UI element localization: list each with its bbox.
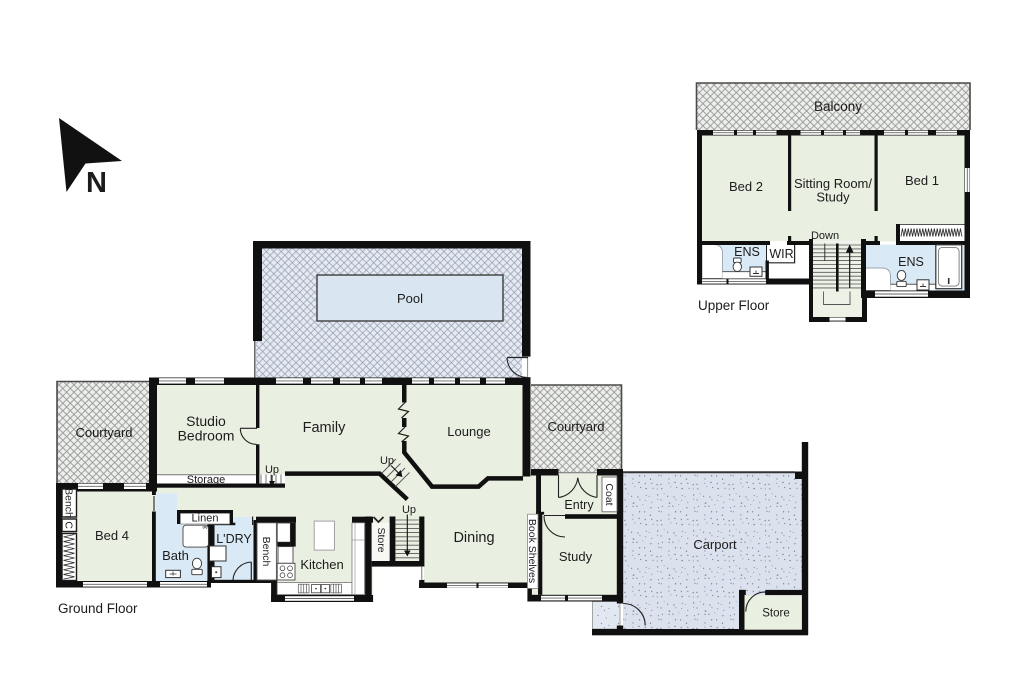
svg-text:Bath: Bath — [162, 548, 189, 563]
svg-text:Bed 4: Bed 4 — [95, 528, 129, 543]
svg-text:Pool: Pool — [397, 291, 423, 306]
svg-text:Study: Study — [816, 190, 850, 205]
svg-text:Store: Store — [375, 527, 387, 552]
svg-text:Courtyard: Courtyard — [75, 425, 132, 440]
svg-text:Carport: Carport — [693, 537, 737, 552]
svg-text:Bed 1: Bed 1 — [905, 173, 939, 188]
svg-text:Coat: Coat — [603, 483, 615, 505]
svg-text:Up: Up — [265, 464, 279, 476]
svg-text:WIR: WIR — [769, 247, 793, 261]
svg-text:Bench: Bench — [62, 488, 74, 518]
svg-text:N: N — [86, 167, 107, 199]
svg-text:Linen: Linen — [192, 513, 219, 525]
svg-text:ENS: ENS — [898, 255, 924, 269]
svg-text:Balcony: Balcony — [814, 99, 862, 114]
svg-text:C: C — [62, 521, 74, 529]
svg-text:Up: Up — [380, 455, 394, 467]
svg-text:Up: Up — [402, 504, 416, 516]
svg-text:Lounge: Lounge — [447, 424, 490, 439]
svg-text:Ground Floor: Ground Floor — [58, 601, 138, 616]
svg-text:Upper Floor: Upper Floor — [698, 298, 770, 313]
svg-text:Kitchen: Kitchen — [300, 557, 343, 572]
svg-text:Bench: Bench — [260, 537, 272, 567]
svg-text:Family: Family — [303, 420, 346, 436]
svg-text:Entry: Entry — [564, 498, 594, 512]
svg-text:Book Shelves: Book Shelves — [526, 519, 538, 583]
svg-text:Bed 2: Bed 2 — [729, 179, 763, 194]
svg-text:Down: Down — [811, 230, 839, 242]
svg-text:Bedroom: Bedroom — [178, 428, 235, 444]
svg-text:Courtyard: Courtyard — [547, 419, 604, 434]
svg-text:ENS: ENS — [734, 245, 760, 259]
svg-text:Store: Store — [762, 608, 790, 620]
svg-text:L'DRY: L'DRY — [216, 532, 252, 546]
svg-text:Dining: Dining — [453, 530, 494, 546]
svg-text:Study: Study — [559, 549, 593, 564]
